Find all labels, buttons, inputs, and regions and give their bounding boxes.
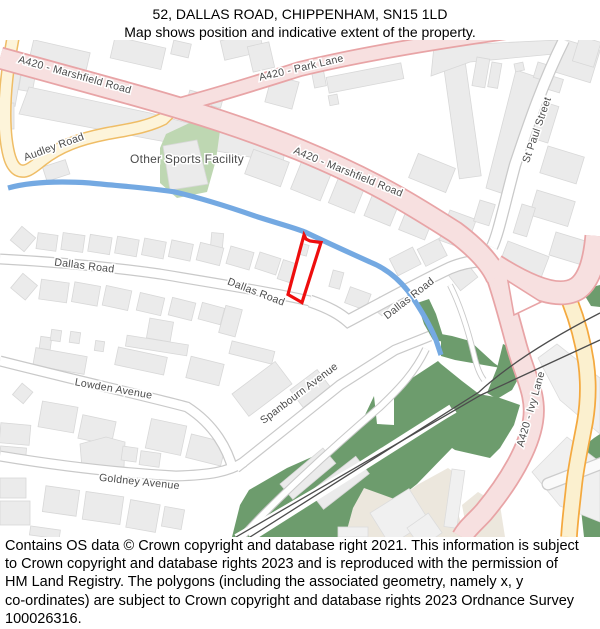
svg-text:Other Sports Facility: Other Sports Facility: [130, 152, 244, 166]
